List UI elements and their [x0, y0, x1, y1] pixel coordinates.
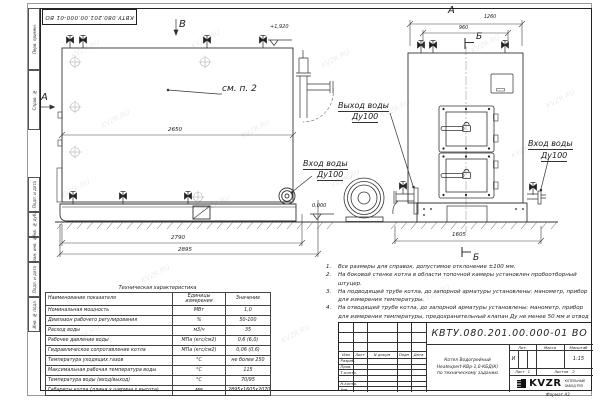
spec-unit: МВт — [173, 306, 226, 316]
elevation-mark-zero — [310, 214, 334, 220]
note-number: 4. — [326, 304, 338, 329]
table-title: Техническая характеристика — [45, 285, 270, 291]
tap-icon — [400, 182, 407, 195]
spec-unit: МПа (кгс/см2) — [173, 336, 226, 346]
sheets-label: Листов — [554, 369, 568, 374]
valve-icon — [80, 36, 87, 49]
spec-name: Рабочее давление воды — [46, 336, 173, 346]
valve-icon — [418, 41, 425, 54]
spec-unit: МПа (кгс/см2) — [173, 346, 226, 356]
tap-icon — [530, 183, 537, 196]
col-podp: Подп — [397, 351, 411, 358]
tech-specs-table: Техническая характеристика Наименование … — [45, 285, 270, 396]
note-text: Все размеры для справок, допустимое откл… — [338, 263, 516, 271]
note-item: 3. На подводящей трубе котла, до запорно… — [326, 288, 592, 305]
spec-unit: °С — [173, 376, 226, 386]
inlet-flange-icon — [279, 188, 295, 204]
note-item: 2. На боковой стенке котла в области топ… — [326, 271, 592, 288]
section-b-mark-top — [465, 38, 474, 49]
note-item: 1. Все размеры для справок, допустимое о… — [326, 263, 592, 271]
elevation-mark-top — [268, 40, 292, 46]
sheet-label: Лист — [515, 369, 525, 374]
spec-unit: м3/ч — [173, 326, 226, 336]
kvzr-logo-text: KVZR — [529, 378, 561, 389]
sheets-value: 2 — [572, 369, 574, 374]
product-name-line2: Heatexpert-КВр-1,0-КБД(К) — [437, 365, 498, 372]
spec-name: Температура воды (вход/выход) — [46, 376, 173, 386]
spec-unit: мм — [173, 386, 226, 396]
spec-value: 0,06 (0,6) — [226, 346, 271, 356]
product-name-line1: Котел Водогрейный — [444, 358, 491, 365]
spec-value: не более 250 — [226, 356, 271, 366]
spec-value: 1,0 — [226, 306, 271, 316]
elevation-value-zero: 0.000 — [312, 203, 326, 209]
note-text: На боковой стенке котла в области топочн… — [338, 271, 592, 288]
spec-unit: °С — [173, 366, 226, 376]
table-row: Рабочее давление водыМПа (кгс/см2)0,6 (6… — [46, 336, 271, 346]
inlet-right-dn: Ду100 — [541, 151, 567, 162]
table-row: Диапазон рабочего регулирования%50-100 — [46, 316, 271, 326]
format-label: Формат А3 — [546, 392, 570, 397]
notes-list: 1. Все размеры для справок, допустимое о… — [326, 263, 592, 329]
boiler-side-view — [57, 48, 333, 221]
table-header: Значение — [226, 293, 271, 306]
title-block: Изм Лист N докум Подп Дата Разраб. Пров.… — [338, 322, 592, 391]
fan-blower-icon — [344, 178, 384, 222]
lit-value: И — [509, 350, 518, 368]
table-header: Наименование показателя — [46, 293, 173, 306]
drawing-sheet: KVZR.RU KVZR.RU KVZR.RU KVZR.RU KVZR.RU … — [0, 0, 600, 400]
table-row: Температура воды (вход/выход)°С70/95 — [46, 376, 271, 386]
outlet-dn: Ду100 — [352, 112, 378, 123]
kvzr-logo-icon — [517, 379, 526, 388]
sheet-value: 1 — [528, 369, 530, 374]
inlet-left-dn: Ду100 — [317, 170, 343, 181]
valve-icon — [430, 41, 437, 54]
base-frame — [417, 203, 527, 222]
dim-2650: 2650 — [168, 127, 182, 133]
valve-icon — [204, 36, 211, 49]
spec-name: Диапазон рабочего регулирования — [46, 316, 173, 326]
dim-2895: 2895 — [178, 247, 192, 253]
inlet-right-label: Вход воды — [528, 139, 573, 150]
note-text: На подводящей трубе котла, до запорной а… — [338, 288, 592, 305]
spec-name: Гидравлическое сопротивление котла — [46, 346, 173, 356]
section-label-b-bottom: Б — [473, 253, 479, 263]
table-row: Температура уходящих газов°Сне более 250 — [46, 356, 271, 366]
doc-number: КВТУ.080.201.00.000-01 ВО — [426, 323, 593, 344]
spec-name: Габариты котла (длина х ширина х высота) — [46, 386, 173, 396]
dim-1260: 1260 — [484, 15, 496, 20]
spec-name: Расход воды — [46, 326, 173, 336]
section-label-b-top: Б — [476, 32, 482, 42]
spec-value: 0,6 (6,0) — [226, 336, 271, 346]
table-row: Максимальная рабочая температура воды°С1… — [46, 366, 271, 376]
view-label-a-front: А — [448, 5, 455, 16]
section-b-mark-bottom — [462, 247, 471, 257]
spec-unit: % — [173, 316, 226, 326]
role-tkontr: Т.контр. — [339, 369, 367, 375]
table-row: Номинальная мощностьМВт1,0 — [46, 306, 271, 316]
logo-subtitle-line2: ЗАВОД РЭП — [565, 384, 585, 388]
spec-name: Максимальная рабочая температура воды — [46, 366, 173, 376]
valve-icon — [502, 41, 509, 54]
product-name-line3: по техническому заданию — [437, 371, 498, 378]
table-row: Гидравлическое сопротивление котлаМПа (к… — [46, 346, 271, 356]
furnace-door-upper — [439, 106, 498, 152]
table-row: Расход водым3/ч35 — [46, 326, 271, 336]
table-header: Единицы измерения — [173, 293, 226, 306]
valve-icon — [67, 36, 74, 49]
crosshair-marks — [69, 56, 212, 204]
spec-unit: °С — [173, 356, 226, 366]
col-izm: Изм — [339, 351, 353, 358]
table-header-row: Наименование показателя Единицы измерени… — [46, 293, 271, 306]
scale-value: 1:15 — [564, 350, 593, 368]
view-label-a-side: А — [41, 92, 48, 103]
table-row: Габариты котла (длина х ширина х высота)… — [46, 386, 271, 396]
inlet-left-label: Вход воды — [303, 159, 348, 170]
note-number: 2. — [326, 271, 338, 288]
elevation-value-top: +1,920 — [270, 24, 289, 30]
col-data: Дата — [411, 351, 426, 358]
spec-value: 35 — [226, 326, 271, 336]
mass-header: Масса — [536, 344, 564, 350]
note-number: 1. — [326, 263, 338, 271]
furnace-door-lower — [439, 153, 498, 198]
spec-value: 70/95 — [226, 376, 271, 386]
view-label-b: В — [179, 19, 186, 30]
col-ndoc: N докум — [367, 351, 397, 358]
outlet-label: Выход воды — [338, 101, 389, 112]
dim-2790: 2790 — [171, 235, 185, 241]
spec-value: 2895х1605х2070 — [226, 386, 271, 396]
note-number: 3. — [326, 288, 338, 305]
control-panel — [491, 74, 513, 93]
boiler-front-view — [393, 46, 546, 232]
valve-icon — [260, 36, 267, 49]
role-utv: Утв. — [339, 386, 367, 392]
see-note-ref: см. п. 2 — [222, 84, 257, 94]
dim-1605: 1605 — [452, 232, 466, 238]
spec-value: 115 — [226, 366, 271, 376]
ground-hatching — [55, 222, 558, 229]
spec-value: 50-100 — [226, 316, 271, 326]
dim-960: 960 — [459, 26, 468, 31]
spec-name: Температура уходящих газов — [46, 356, 173, 366]
col-list: Лист — [353, 351, 367, 358]
spec-name: Номинальная мощность — [46, 306, 173, 316]
